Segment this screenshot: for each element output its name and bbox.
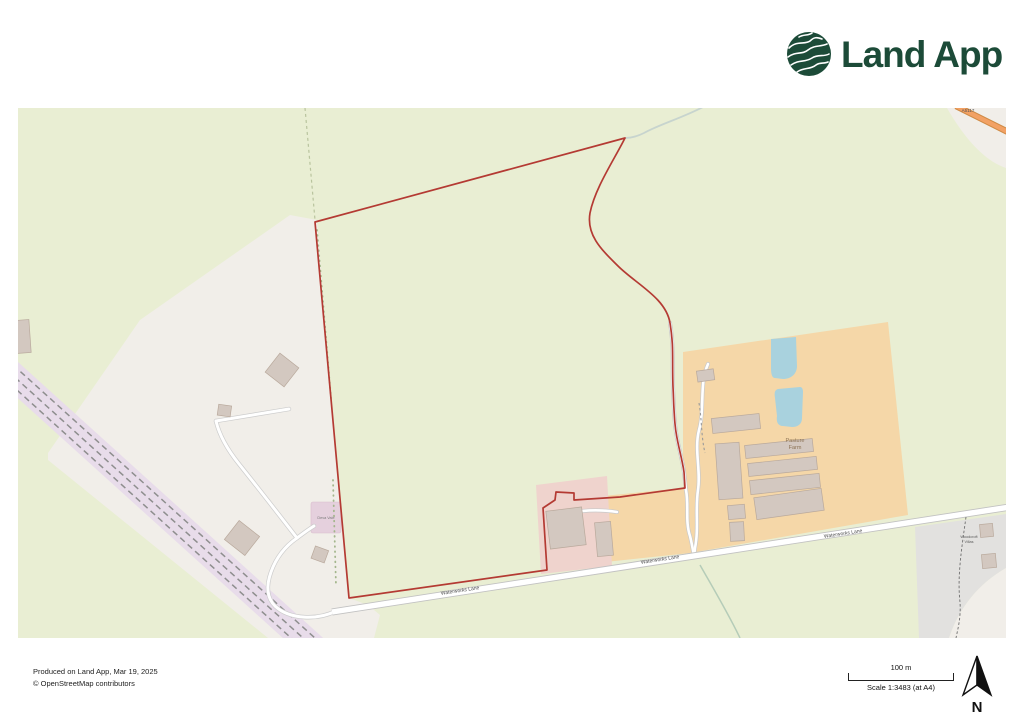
north-arrow-left [963,656,977,695]
building [18,320,31,354]
north-arrow: N [955,652,999,716]
attribution: Produced on Land App, Mar 19, 2025 © Ope… [33,666,158,689]
attribution-osm: © OpenStreetMap contributors [33,678,158,690]
landapp-globe-icon [786,31,832,77]
scalebar-ratio: Scale 1:3483 (at A4) [867,683,935,692]
label-pasture-farm-2: Farm [789,445,802,451]
scalebar-bar [848,673,954,681]
north-arrow-right [977,656,991,695]
farm-building [730,522,745,542]
farm-building [715,442,743,500]
map-canvas: Pasture Farm Waterworks Lane Waterworks … [18,108,1006,638]
scalebar-distance: 100 m [848,663,954,672]
pond-south [775,387,803,427]
farm-building [696,369,714,382]
label-a-road: A5117 [962,108,975,113]
building [217,404,231,417]
label-pasture-farm-1: Pasture [786,438,805,444]
map-svg: Pasture Farm Waterworks Lane Waterworks … [18,108,1006,638]
north-label: N [972,699,983,716]
pond-north [771,337,797,379]
label-deva-vale: Deva Vale [317,516,334,520]
label-woodcroft-2: Villas [964,540,973,544]
building [981,553,996,568]
building [546,507,586,549]
farm-building [727,504,745,519]
landapp-logo: Land App [786,31,1002,77]
label-woodcroft-1: Woodcroft [960,535,978,539]
landapp-wordmark: Land App [841,36,1002,73]
scalebar: 100 m Scale 1:3483 (at A4) [848,663,954,692]
building [979,523,993,537]
attribution-produced: Produced on Land App, Mar 19, 2025 [33,666,158,678]
building [595,521,614,556]
